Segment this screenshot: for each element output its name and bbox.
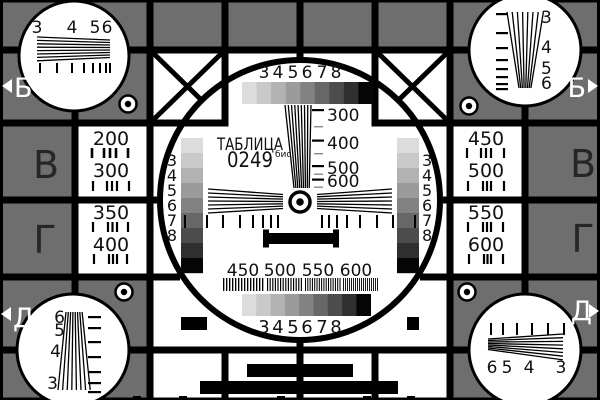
row-letter-right-v: В [570, 142, 596, 186]
top-gray-label: 6 [302, 63, 313, 83]
bottom-bar-short [247, 364, 353, 377]
bottom-gray-label: 5 [287, 317, 298, 338]
top-gray-label: 8 [331, 63, 342, 83]
right-grayscale-column [397, 138, 419, 273]
corner-label: 4 [524, 358, 535, 378]
title-suffix: бис [275, 150, 291, 160]
target-icon [116, 284, 133, 301]
bottom-gray-label: 6 [301, 317, 312, 338]
freq-value: 350 [93, 202, 129, 224]
corner-label: 6 [102, 18, 113, 38]
wedge-label: 400 [327, 134, 359, 154]
test-card: 3 4 5 6 7 8 300 400 500 600 ТАБЛИЦА 0249… [0, 0, 600, 400]
freq-value: 550 [468, 202, 504, 224]
side-gray-label: 8 [167, 226, 177, 245]
corner-label: 5 [54, 321, 65, 341]
freq-value: 450 [468, 128, 504, 150]
bottom-gray-label: 8 [330, 317, 341, 338]
wedge-label: 600 [327, 172, 359, 192]
target-icon [459, 284, 476, 301]
test-card-canvas: 3 4 5 6 7 8 300 400 500 600 ТАБЛИЦА 0249… [0, 0, 600, 400]
bottom-gray-label: 3 [258, 317, 269, 338]
row-letter-left-g: Г [33, 218, 56, 262]
bottom-bar-long [200, 381, 398, 394]
corner-label: 3 [32, 18, 43, 38]
target-icon [120, 96, 137, 113]
left-grayscale-column [181, 138, 203, 273]
top-grayscale-steps [242, 82, 373, 104]
row-letter-right-g: Г [571, 217, 594, 261]
top-right-circle [469, 0, 581, 106]
corner-label: 3 [541, 8, 552, 28]
freq-value: 600 [468, 234, 504, 256]
freq-value: 500 [468, 160, 504, 182]
top-gray-label: 4 [273, 63, 284, 83]
top-right-labels: 3 4 5 6 [541, 8, 552, 94]
row-letter-left-d: Д [13, 303, 34, 334]
bottom-gray-label: 7 [316, 317, 327, 338]
burst-label: 550 [302, 261, 334, 281]
corner-label: 6 [487, 358, 498, 378]
freq-value: 200 [93, 128, 129, 150]
bottom-gray-label: 4 [272, 317, 283, 338]
title-number: 0249 [227, 148, 273, 172]
freq-value: 400 [93, 234, 129, 256]
left-grayscale-labels: 3 4 5 6 7 8 [167, 151, 177, 245]
corner-label: 6 [541, 74, 552, 94]
burst-label: 450 [227, 261, 259, 281]
corner-label: 3 [47, 374, 58, 394]
corner-label: 4 [541, 38, 552, 58]
corner-label: 5 [90, 18, 101, 38]
row-letter-left-b: Б [14, 73, 33, 104]
top-gray-label: 7 [317, 63, 328, 83]
corner-label: 4 [67, 18, 78, 38]
bottom-grayscale-steps [242, 294, 371, 316]
side-gray-label: 8 [422, 226, 432, 245]
top-gray-label: 3 [259, 63, 270, 83]
freq-value: 300 [93, 160, 129, 182]
corner-label: 3 [556, 358, 567, 378]
row-letter-left-v: В [33, 143, 59, 187]
target-icon [461, 98, 478, 115]
corner-label: 4 [50, 342, 61, 362]
corner-label: 5 [502, 358, 513, 378]
vertical-wedge-labels: 300 400 500 600 [327, 106, 359, 192]
row-letter-right-d: Д [571, 296, 592, 327]
top-gray-label: 5 [288, 63, 299, 83]
wedge-label: 300 [327, 106, 359, 126]
right-grayscale-labels: 3 4 5 6 7 8 [422, 151, 432, 245]
row-letter-right-b: Б [567, 73, 586, 104]
